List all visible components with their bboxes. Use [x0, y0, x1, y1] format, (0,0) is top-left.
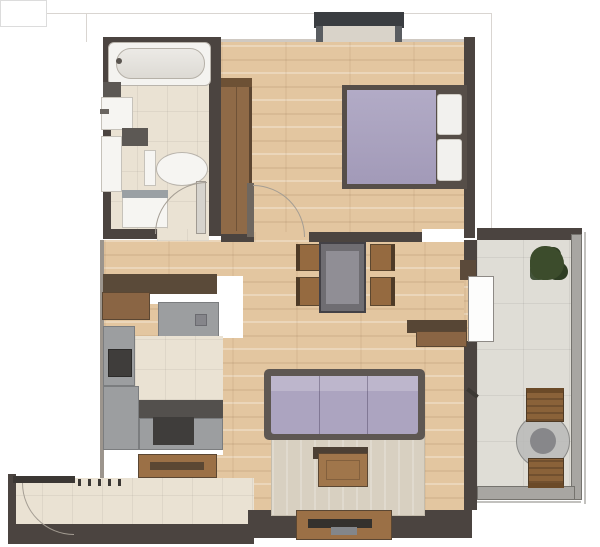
coat-hook — [78, 479, 81, 486]
patio-table-center — [530, 428, 556, 454]
hallway-left-wall — [8, 474, 16, 544]
cooktop-counter-top — [139, 400, 223, 418]
floor-gap — [103, 455, 138, 478]
bathtub-faucet — [116, 58, 122, 64]
window-sill — [323, 26, 395, 42]
base-counter — [103, 386, 139, 450]
bed-mattress — [347, 90, 436, 184]
sofa-back-cushions — [271, 376, 418, 391]
kitchen-sink — [195, 314, 207, 326]
entrance-door-leaf — [13, 476, 75, 483]
balcony-door-leaf — [468, 276, 494, 342]
bed-pillow — [437, 94, 462, 135]
dining-chair — [370, 244, 395, 271]
wardrobe-seam — [236, 87, 237, 231]
bathroom-wall-block — [103, 82, 121, 97]
sofa-seam — [319, 376, 320, 434]
potted-plant — [530, 246, 564, 280]
kitchen-partition — [217, 276, 243, 338]
wall-console — [416, 331, 467, 347]
bathroom-bottom-wall — [103, 229, 157, 239]
coat-hook — [88, 479, 91, 486]
living-right-wall — [464, 341, 477, 510]
cooktop — [153, 417, 194, 445]
coat-hook — [108, 479, 111, 486]
basin-faucet — [100, 109, 109, 114]
building-outline — [47, 13, 492, 14]
balcony-railing-right — [571, 234, 582, 500]
kitchen-floor — [135, 336, 223, 400]
dining-chair — [296, 277, 321, 306]
window-post — [316, 26, 323, 42]
washing-machine-panel — [122, 190, 168, 198]
window-post — [395, 26, 402, 42]
balcony-top-wall — [477, 228, 582, 240]
dining-chair — [296, 244, 321, 271]
coat-hook — [118, 479, 121, 486]
dining-chair — [370, 277, 395, 306]
soundbar — [331, 527, 357, 535]
bedroom-bottom-wall — [309, 232, 422, 242]
patio-chair — [526, 388, 564, 422]
toilet-tank — [144, 150, 156, 186]
bar-counter-top — [103, 274, 217, 294]
building-outline — [491, 13, 492, 229]
coat-hook — [98, 479, 101, 486]
balcony-railing-outer — [477, 501, 581, 503]
dining-table-top — [326, 251, 359, 304]
hallway-bottom-wall — [8, 524, 254, 544]
apartment-floor-plan — [0, 0, 600, 547]
neighbor-outline-box — [0, 0, 47, 27]
sideboard-drawer — [150, 462, 204, 470]
bathroom-wall-block — [122, 128, 148, 146]
wall-gap — [422, 229, 464, 242]
balcony-railing-bottom — [477, 486, 575, 500]
sink-counter — [158, 302, 219, 338]
patio-chair — [528, 458, 564, 488]
bar-counter-front — [102, 292, 150, 320]
bathtub-basin — [116, 48, 205, 79]
sofa-seam — [367, 376, 368, 434]
oven — [108, 349, 132, 377]
coffee-table-inset — [326, 460, 360, 480]
wardrobe-top — [221, 78, 252, 87]
tall-cabinet — [101, 136, 122, 192]
building-outline — [86, 13, 87, 42]
balcony-railing-outer — [584, 232, 586, 504]
bed-pillow — [437, 139, 462, 181]
